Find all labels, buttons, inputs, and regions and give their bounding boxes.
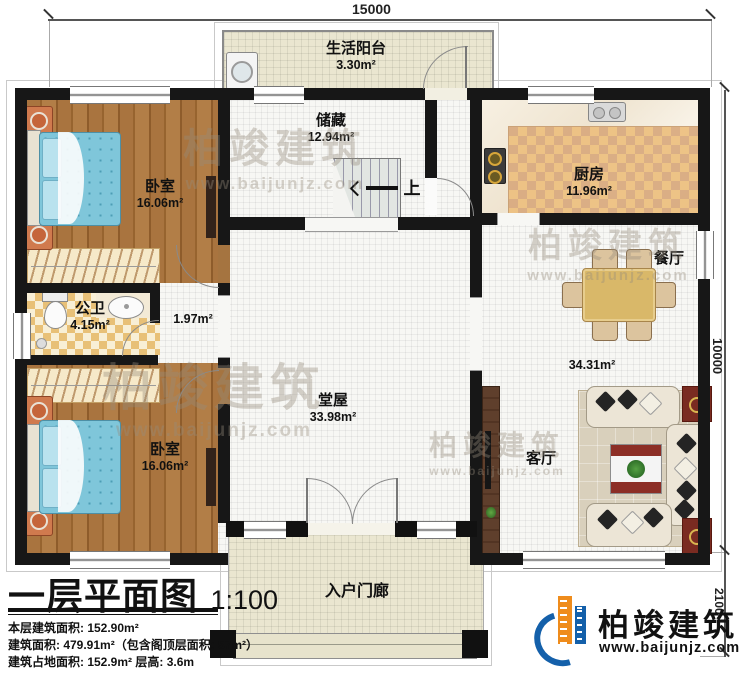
- drawing-scale: 1:100: [210, 585, 278, 615]
- wall-storage-south-a: [230, 217, 305, 230]
- opening-hall-dining: [470, 297, 482, 371]
- company-name: 柏竣建筑: [598, 600, 738, 645]
- area-label-dining-living: 34.31m²: [569, 358, 616, 373]
- dimension-line-top: [48, 19, 712, 21]
- dimension-top-value: 15000: [352, 1, 391, 17]
- dining-chair: [653, 282, 676, 308]
- room-label-kitchen: 厨房11.96m²: [566, 166, 612, 199]
- sink-icon: [108, 296, 144, 319]
- stairs-up-label: 上: [404, 179, 421, 199]
- title-underline: [8, 608, 218, 612]
- company-website: www.baijunjz.com: [599, 640, 740, 656]
- room-label-vestibule: 1.97m²: [173, 312, 213, 327]
- porch-column-right: [462, 630, 488, 658]
- wall-kitchen-south-a: [470, 213, 497, 225]
- opening-kitchen: [497, 213, 540, 225]
- window-storage: [254, 86, 304, 104]
- tv-cabinet-wall: [482, 386, 500, 555]
- window-bathroom: [13, 313, 31, 359]
- room-label-dining: 餐厅: [654, 250, 684, 268]
- dimension-right-value: 10000: [710, 338, 725, 374]
- opening-vestibule: [218, 295, 230, 358]
- info-line-total-area: 建筑面积: 479.91m²（包含阁顶层面积: 57m²）: [8, 636, 258, 653]
- doorway-bedroom1: [218, 245, 230, 283]
- tv-icon: [485, 431, 491, 489]
- window-hall-left: [244, 521, 286, 539]
- window-bedroom1: [70, 86, 170, 104]
- wall-bathroom-north: [15, 283, 158, 293]
- floor-plan-canvas: 生活阳台3.30m² 储藏12.94m² 厨房11.96m² 餐厅 卧室16.0…: [0, 0, 750, 673]
- title-underline-thin: [8, 614, 218, 615]
- wall-left-wing-divider-lower: [218, 404, 230, 523]
- opening-storage-hall: [305, 217, 398, 232]
- window-dining: [696, 231, 714, 279]
- wall-jamb: [218, 283, 230, 295]
- company-logo-icon: [534, 596, 594, 660]
- window-living: [523, 551, 665, 569]
- bedroom2-tv-panel: [206, 448, 216, 506]
- info-line-footprint: 建筑占地面积: 152.9m² 层高: 3.6m: [8, 653, 194, 670]
- room-label-porch: 入户门廊: [325, 582, 389, 601]
- doorway-entry: [307, 523, 397, 535]
- floor-drain-icon: [36, 338, 47, 349]
- wall-right: [698, 88, 710, 565]
- room-label-living: 客厅: [526, 450, 556, 468]
- wall-bathroom-south: [15, 355, 158, 365]
- dining-table: [582, 268, 656, 322]
- wall-storage-east: [425, 100, 437, 178]
- plant-icon: [627, 460, 645, 478]
- dimension-line-right: [724, 90, 726, 553]
- room-label-hall: 堂屋33.98m²: [310, 392, 357, 425]
- column: [286, 521, 308, 537]
- door-leaf-balcony: [465, 46, 467, 88]
- room-label-bathroom: 公卫4.15m²: [70, 300, 110, 333]
- toilet-icon: [44, 301, 67, 329]
- info-line-floor-area: 本层建筑面积: 152.90m²: [8, 619, 139, 636]
- plant-icon: [486, 507, 496, 518]
- room-label-bedroom1: 卧室16.06m²: [137, 178, 184, 211]
- wall-kitchen-south-b: [538, 213, 710, 225]
- room-label-bedroom2: 卧室16.06m²: [142, 441, 189, 474]
- washing-machine-icon: [226, 52, 258, 90]
- window-hall-right: [417, 521, 456, 539]
- column: [456, 521, 477, 537]
- column: [395, 521, 417, 537]
- stair-direction-arrow: [366, 186, 398, 190]
- wall-bathroom-east: [150, 283, 160, 323]
- doorway-balcony: [425, 88, 467, 100]
- room-label-balcony: 生活阳台3.30m²: [326, 40, 386, 73]
- room-label-storage: 储藏12.94m²: [308, 112, 355, 145]
- door-leaf-entry-right: [396, 478, 398, 523]
- doorway-bedroom2: [218, 368, 230, 404]
- column: [226, 521, 244, 537]
- wall-hall-east-upper: [470, 225, 482, 297]
- stove-icon: [484, 148, 506, 184]
- window-kitchen: [528, 86, 594, 104]
- wall-left-wing-divider: [218, 100, 230, 245]
- door-leaf-entry-left: [306, 478, 308, 523]
- bedroom1-tv-panel: [206, 176, 216, 238]
- kitchen-sink-icon: [588, 102, 626, 122]
- doorway-storage: [425, 178, 437, 215]
- porch-steps: [233, 633, 477, 659]
- coffee-table: [610, 444, 662, 494]
- closet-top: [27, 248, 160, 285]
